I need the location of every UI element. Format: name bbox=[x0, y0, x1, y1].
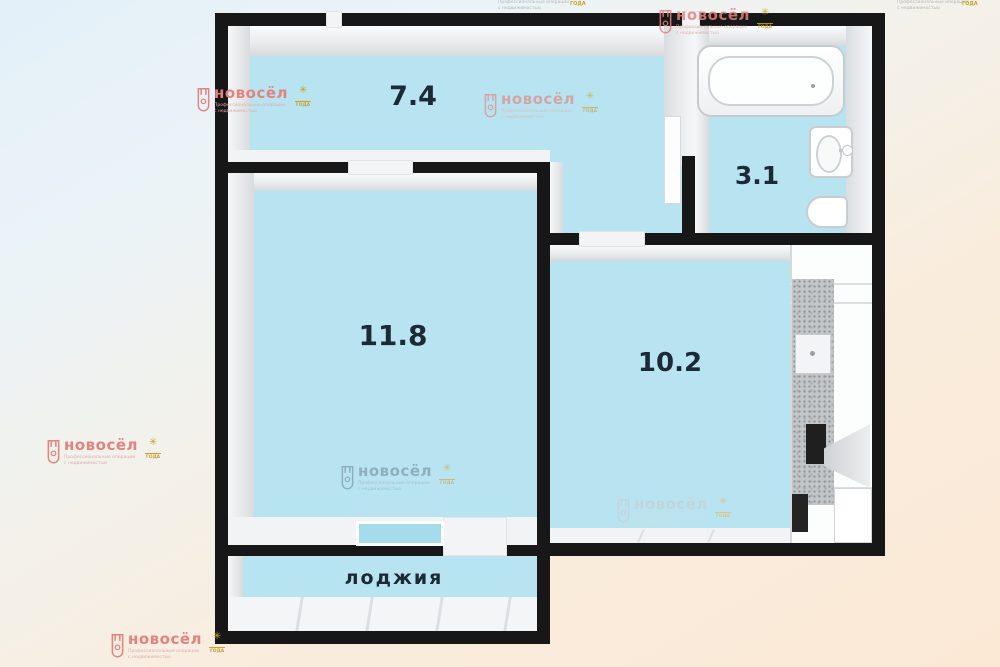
house-logo-icon bbox=[658, 9, 673, 34]
award-badge: ✳ГОДА bbox=[295, 86, 311, 108]
novosel-watermark: новосёлПрофессиональные операциис недвиж… bbox=[196, 86, 311, 115]
kitchen-bathroom-partition bbox=[645, 233, 885, 245]
brand-tagline: Профессиональные операции bbox=[358, 481, 432, 486]
brand-tagline: с недвижимостью bbox=[214, 109, 288, 114]
hallway-top-wall-face bbox=[228, 26, 682, 56]
award-star-icon: ✳ bbox=[209, 632, 225, 642]
loggia-partition bbox=[215, 545, 445, 556]
award-star-icon: ✳ bbox=[582, 92, 598, 102]
room-left-wall-face bbox=[228, 173, 254, 527]
right-outer-wall bbox=[872, 13, 885, 556]
bathroom-partition-lower bbox=[682, 156, 695, 245]
award-badge-label: ГОДА bbox=[439, 479, 455, 486]
faded-award-badge: ГОДА bbox=[962, 1, 978, 7]
top-wall-segment bbox=[215, 13, 326, 26]
award-star-icon: ✳ bbox=[145, 438, 161, 448]
award-badge: ✳ГОДА bbox=[715, 497, 731, 519]
brand-text: новосёл bbox=[358, 464, 432, 479]
washbasin-tap bbox=[842, 145, 853, 156]
washbasin-bowl bbox=[816, 135, 842, 173]
award-badge-label: ГОДА bbox=[962, 1, 978, 7]
house-logo-icon bbox=[46, 439, 61, 464]
loggia-right-wall bbox=[537, 545, 550, 644]
novosel-watermark: новосёлПрофессиональные операциис недвиж… bbox=[110, 632, 225, 661]
hallway-room-partition bbox=[413, 162, 550, 173]
novosel-watermark: новосёлПрофессиональные операциис недвиж… bbox=[340, 464, 455, 493]
brand-text: новосёл bbox=[634, 497, 708, 512]
brand-tagline: Профессиональные операции bbox=[501, 109, 575, 114]
novosel-watermark: новосёлПрофессиональные операциис недвиж… bbox=[483, 92, 598, 121]
brand-text: новосёл bbox=[214, 86, 288, 101]
award-badge-label: ГОДА bbox=[715, 512, 731, 519]
brand-tagline: с недвижимостью bbox=[676, 31, 750, 36]
house-logo-icon bbox=[110, 633, 125, 658]
kitchen-sink bbox=[795, 334, 831, 374]
faded-award-badge: ГОДА bbox=[570, 1, 586, 7]
award-badge: ✳ГОДА bbox=[145, 438, 161, 460]
award-star-icon: ✳ bbox=[439, 464, 455, 474]
entrance-door-gap bbox=[326, 11, 342, 28]
house-logo-icon bbox=[196, 87, 211, 112]
faded-watermark-text: Профессиональные операции с недвижимость… bbox=[498, 0, 569, 12]
brand-text: новосёл bbox=[501, 92, 575, 107]
brand-tagline: с недвижимостью bbox=[64, 461, 138, 466]
brand-tagline: Профессиональные операции bbox=[897, 0, 968, 6]
award-star-icon: ✳ bbox=[757, 8, 773, 18]
award-badge-label: ГОДА bbox=[209, 647, 225, 654]
brand-tagline: Профессиональные операции bbox=[64, 455, 138, 460]
award-badge: ✳ГОДА bbox=[582, 92, 598, 114]
loggia-doorway bbox=[443, 517, 507, 556]
award-badge-label: ГОДА bbox=[757, 23, 773, 30]
brand-tagline: с недвижимостью bbox=[128, 655, 202, 660]
hallway-area-label: 7.4 bbox=[375, 83, 451, 110]
faded-watermark-text: Профессиональные операции с недвижимость… bbox=[897, 0, 968, 12]
brand-tagline: Профессиональные операции bbox=[128, 649, 202, 654]
brand-tagline: Профессиональные операции bbox=[498, 0, 569, 6]
award-badge-label: ГОДА bbox=[145, 453, 161, 460]
corridor-floor bbox=[550, 162, 682, 233]
house-logo-icon bbox=[483, 93, 498, 118]
top-wall-segment bbox=[342, 13, 682, 26]
house-logo-icon bbox=[340, 465, 355, 490]
hallway-room-partition bbox=[222, 162, 348, 173]
toilet bbox=[806, 196, 848, 228]
loggia-label: лоджия bbox=[330, 569, 458, 588]
bathtub-basin bbox=[708, 56, 834, 106]
floor-plan-canvas: 7.4 3.1 11.8 10.2 лоджия новосёлПрофесси… bbox=[0, 0, 1000, 667]
bathroom-area-label: 3.1 bbox=[720, 163, 794, 188]
kitchen-sink-drain bbox=[810, 351, 815, 356]
brand-tagline: с недвижимостью bbox=[501, 115, 575, 120]
kitchen-bottom-wall bbox=[537, 543, 885, 556]
award-star-icon: ✳ bbox=[295, 86, 311, 96]
brand-tagline: Профессиональные операции bbox=[676, 25, 750, 30]
brand-text: новосёл bbox=[64, 438, 138, 453]
loggia-window bbox=[356, 521, 444, 546]
kitchen-doorway bbox=[579, 231, 645, 247]
award-star-icon: ✳ bbox=[715, 497, 731, 507]
lower-cabinet bbox=[834, 488, 872, 543]
award-badge-label: ГОДА bbox=[582, 107, 598, 114]
award-badge: ✳ГОДА bbox=[757, 8, 773, 30]
award-badge-label: ГОДА bbox=[295, 101, 311, 108]
bathroom-door-leaf bbox=[664, 116, 681, 204]
novosel-watermark: новосёлПрофессиональные операциис недвиж… bbox=[658, 8, 773, 37]
room-kitchen-partition bbox=[537, 162, 550, 556]
bathtub-drain bbox=[811, 84, 815, 88]
house-logo-icon bbox=[616, 498, 631, 523]
brand-tagline: с недвижимостью bbox=[897, 6, 968, 12]
bathtub bbox=[697, 45, 845, 117]
brand-tagline: Профессиональные операции bbox=[214, 103, 288, 108]
corridor-left-wall-face bbox=[550, 162, 563, 233]
loggia-tiled-sill bbox=[228, 597, 537, 631]
brand-tagline: с недвижимостью bbox=[634, 520, 708, 525]
room-area-label: 11.8 bbox=[340, 322, 446, 350]
stove bbox=[806, 424, 826, 464]
kitchen-bottom-sill bbox=[550, 528, 790, 543]
novosel-watermark: новосёлПрофессиональные операциис недвиж… bbox=[46, 438, 161, 467]
kitchen-top-wall-stub bbox=[537, 233, 579, 245]
award-badge: ✳ГОДА bbox=[439, 464, 455, 486]
oven bbox=[792, 494, 808, 532]
novosel-watermark: новосёлПрофессиональные операциис недвиж… bbox=[616, 497, 731, 526]
brand-text: новосёл bbox=[128, 632, 202, 647]
brand-text: новосёл bbox=[676, 8, 750, 23]
brand-tagline: Профессиональные операции bbox=[634, 514, 708, 519]
loggia-bottom-wall bbox=[215, 631, 550, 644]
brand-tagline: с недвижимостью bbox=[358, 487, 432, 492]
kitchen-counter bbox=[792, 279, 834, 505]
room-doorway bbox=[348, 160, 413, 175]
washbasin bbox=[809, 126, 853, 178]
kitchen-area-label: 10.2 bbox=[615, 350, 725, 376]
room-top-wall-face bbox=[228, 173, 537, 191]
brand-tagline: с недвижимостью bbox=[498, 6, 569, 12]
award-badge-label: ГОДА bbox=[570, 1, 586, 7]
award-badge: ✳ГОДА bbox=[209, 632, 225, 654]
